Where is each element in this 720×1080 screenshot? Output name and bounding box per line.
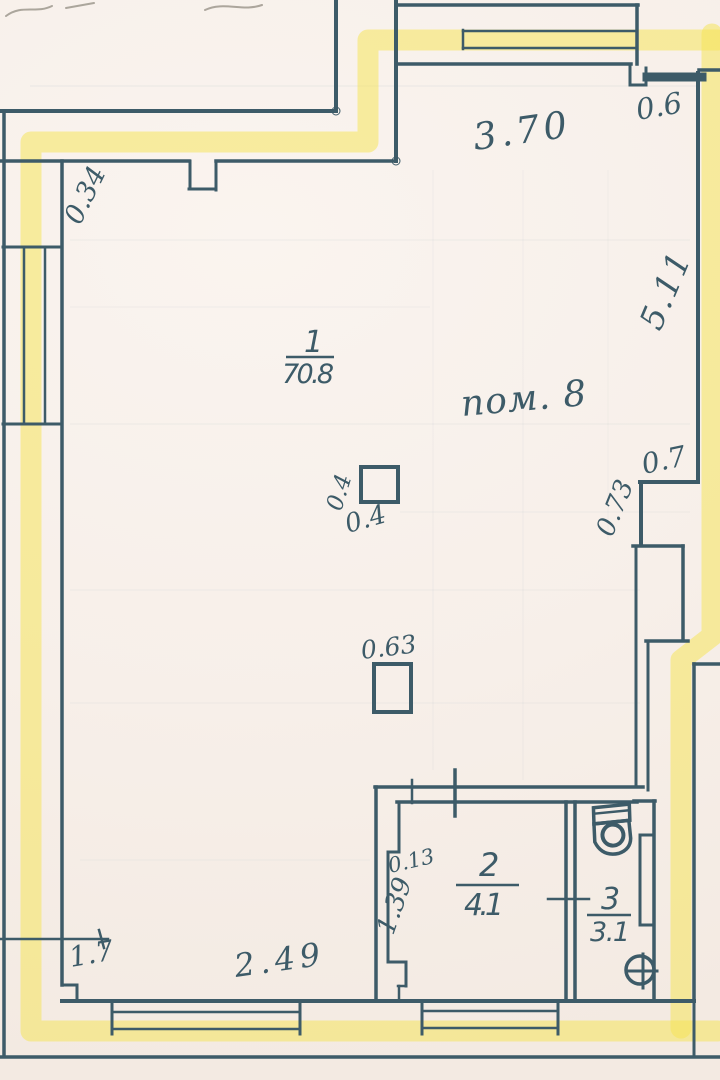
column-symbol-2 bbox=[374, 664, 411, 712]
room3-area-label: 3.1 bbox=[590, 917, 630, 948]
scan-lines bbox=[30, 86, 700, 860]
dim-bottom-width-label: 2.49 bbox=[231, 935, 328, 985]
dim-top-right-label: 0.6 bbox=[633, 85, 684, 126]
dim-column2-width-label: 0.63 bbox=[359, 629, 418, 665]
dim-niche-depth-label: 0.73 bbox=[591, 476, 641, 541]
floorplan-scan: 3.70 0.6 0.34 5.11 0.7 0.73 0.4 0.4 0.63… bbox=[0, 0, 720, 1080]
dim-room2-height-label: 1.39 bbox=[371, 874, 418, 939]
dim-niche-width-label: 0.7 bbox=[639, 439, 690, 481]
room1-area-label: 70.8 bbox=[282, 359, 334, 390]
room1-label: 1 70.8 bbox=[282, 325, 334, 390]
dim-right-height-label: 5.11 bbox=[631, 245, 699, 335]
column-symbol-1 bbox=[361, 467, 398, 502]
dim-bottom-left-label: 1.7 bbox=[66, 934, 116, 974]
dim-room2-step-label: 0.13 bbox=[386, 844, 437, 878]
room1-number-label: 1 bbox=[304, 325, 323, 360]
dim-top-width-label: 3.70 bbox=[470, 103, 573, 159]
room2-number-label: 2 bbox=[479, 846, 499, 884]
room3-number-label: 3 bbox=[601, 882, 620, 917]
room2-area-label: 4.1 bbox=[464, 888, 504, 923]
room2-label: 2 4.1 bbox=[456, 846, 519, 923]
toilet-icon bbox=[589, 802, 636, 857]
radiator-symbol bbox=[640, 835, 654, 925]
room1-name-label: пом. 8 bbox=[459, 373, 589, 425]
dim-left-offset-label: 0.34 bbox=[58, 161, 112, 229]
pencil-scribbles bbox=[6, 3, 262, 16]
room3-label: 3 3.1 bbox=[587, 882, 631, 948]
